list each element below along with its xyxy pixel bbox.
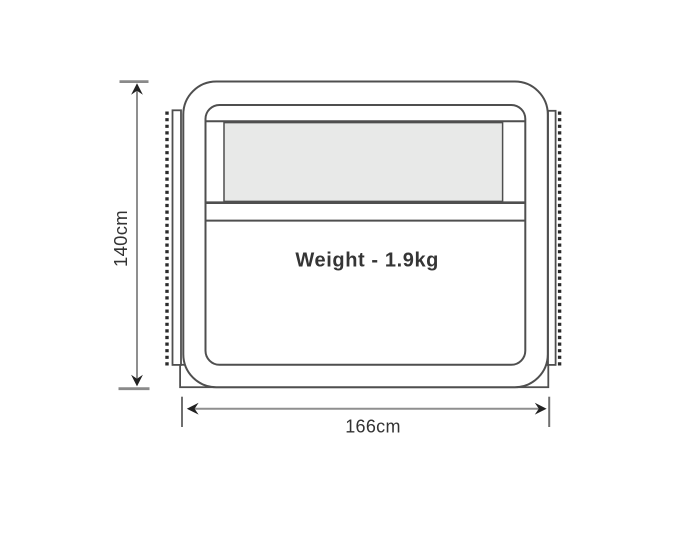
svg-text:140cm: 140cm: [110, 210, 131, 267]
svg-text:Weight - 1.9kg: Weight - 1.9kg: [295, 250, 439, 272]
svg-text:166cm: 166cm: [345, 417, 401, 437]
